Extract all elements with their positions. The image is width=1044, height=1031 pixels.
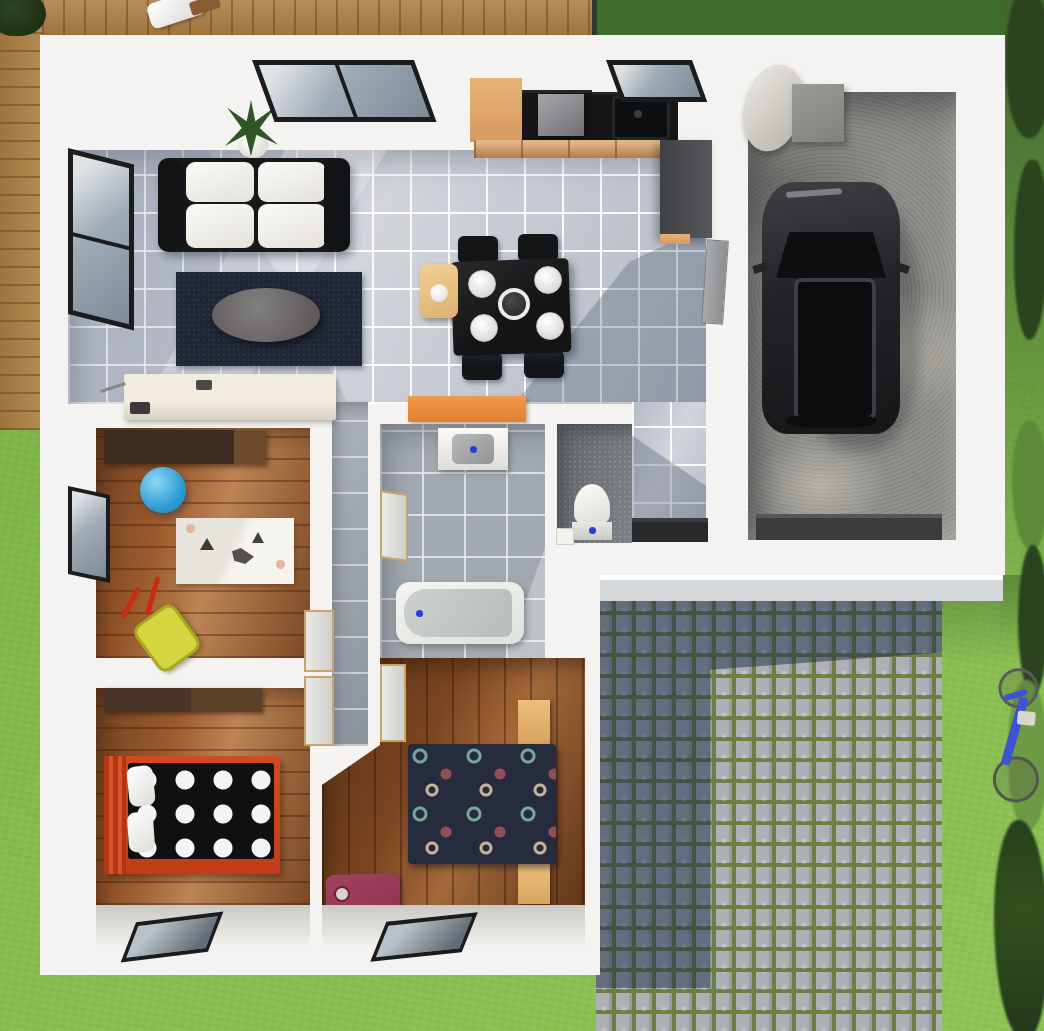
house-shadow-on-driveway: [596, 601, 942, 1031]
coffee-table: [212, 288, 320, 342]
living-west-window: [68, 148, 134, 330]
plate-4: [536, 312, 564, 340]
front-door: [632, 518, 708, 542]
floor-plan-canvas: [0, 0, 1044, 1031]
bathtub-drain: [416, 610, 423, 617]
kitchen-side-counter: [660, 140, 712, 238]
hedge-upper: [1014, 160, 1044, 340]
orange-cabinet: [408, 396, 526, 422]
toilet-bowl: [574, 484, 610, 526]
patterned-duvet: [408, 744, 556, 864]
kitchen-tall-cabinet: [470, 78, 522, 142]
utility-box: [792, 84, 844, 142]
plate-3: [470, 314, 498, 342]
basin-drain: [470, 446, 477, 453]
sofa-seat-right: [258, 204, 326, 248]
deck-edge: [592, 0, 597, 35]
plate-1: [468, 270, 496, 298]
nightstand-top: [518, 700, 550, 744]
dining-chair-4: [524, 350, 564, 378]
living-top-window: [252, 60, 437, 122]
garage-door: [756, 514, 942, 540]
window-mullion: [335, 65, 358, 117]
sideboard-object-1: [130, 402, 150, 414]
high-chair-tray: [430, 284, 448, 302]
small-bedroom-door-leaf: [304, 676, 334, 746]
car-rear-window: [786, 414, 876, 428]
car-roof-sunroof: [794, 278, 876, 420]
wc-small-box: [556, 528, 574, 545]
wood-deck-top: [42, 0, 596, 35]
flush-button: [589, 527, 596, 534]
window-mullion: [73, 232, 129, 250]
blue-ball: [140, 467, 186, 513]
hedge-bottom: [994, 820, 1044, 1031]
kitchen-sink: [612, 96, 670, 140]
nightstand-bottom: [518, 864, 550, 904]
sideboard: [124, 374, 336, 420]
kitchen-window: [606, 60, 707, 102]
car-windshield: [776, 232, 886, 278]
extractor-hood: [538, 94, 584, 136]
wood-deck-left: [0, 0, 42, 430]
pillow-2: [127, 811, 156, 853]
suitcase-dial: [334, 886, 350, 902]
side-counter-trim: [660, 234, 690, 244]
sofa-arm-left: [158, 160, 184, 250]
sofa-back-cushion-right: [258, 162, 326, 202]
bicycle-basket: [1017, 710, 1036, 726]
entry-step: [583, 575, 1003, 601]
sofa-seat-left: [186, 204, 254, 248]
hedge-top: [1006, 0, 1044, 138]
plate-2: [534, 266, 562, 294]
kids-door-leaf: [304, 610, 334, 672]
cobblestone-driveway: [596, 601, 942, 1031]
sofa-arm-right: [324, 160, 350, 250]
kids-west-window: [68, 486, 110, 583]
rug-motif-dot-1: [186, 524, 195, 533]
pillow-1: [126, 765, 156, 807]
master-door-leaf: [380, 664, 406, 742]
red-bed-headboard: [104, 756, 126, 874]
center-bowl: [502, 292, 526, 316]
car: [762, 182, 900, 434]
sideboard-object-2: [196, 380, 212, 390]
kids-wardrobe: [104, 430, 266, 464]
lawn-dark-top: [595, 0, 1044, 35]
bathroom-door-leaf: [380, 490, 408, 562]
dining-chair-3: [462, 352, 502, 380]
small-bedroom-wardrobe: [104, 688, 262, 712]
kitchen-drawer-run: [474, 140, 678, 158]
sink-drain: [634, 110, 642, 118]
sofa-back-cushion-left: [186, 162, 254, 202]
corridor-floor: [332, 402, 368, 746]
rug-motif-dot-2: [276, 560, 285, 569]
